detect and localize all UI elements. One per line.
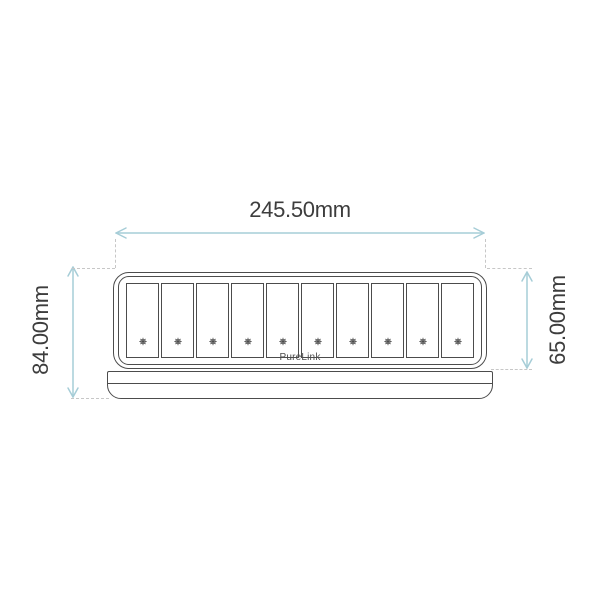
dimension-drawing: 245.50mm 84.00mm 65.00mm <box>0 0 600 600</box>
blank-slot-plate <box>301 283 334 358</box>
extension-line <box>115 239 116 268</box>
blank-slot-plate <box>336 283 369 358</box>
blank-slot-plate <box>406 283 439 358</box>
slot-row <box>126 283 474 358</box>
screw-head-icon <box>208 337 217 346</box>
width-dimension-label: 245.50mm <box>200 197 400 223</box>
blank-slot-plate <box>126 283 159 358</box>
screw-head-icon <box>453 337 462 346</box>
blank-slot-plate <box>196 283 229 358</box>
extension-line <box>487 268 532 269</box>
blank-slot-plate <box>161 283 194 358</box>
device-base <box>107 371 493 399</box>
extension-line <box>71 398 109 399</box>
body-height-dimension-label: 65.00mm <box>545 250 571 390</box>
extension-line <box>72 268 115 269</box>
screw-head-icon <box>383 337 392 346</box>
total-height-dimension-label: 84.00mm <box>28 260 54 400</box>
body-height-dimension-arrow <box>520 268 534 372</box>
extension-line <box>485 239 486 268</box>
extension-line <box>491 369 532 370</box>
screw-head-icon <box>138 337 147 346</box>
width-dimension-arrow <box>111 226 489 240</box>
screw-head-icon <box>418 337 427 346</box>
screw-head-icon <box>173 337 182 346</box>
blank-slot-plate <box>441 283 474 358</box>
screw-head-icon <box>313 337 322 346</box>
base-divider-line <box>108 383 492 384</box>
screw-head-icon <box>243 337 252 346</box>
brand-label: PureLink <box>113 352 487 363</box>
blank-slot-plate <box>371 283 404 358</box>
screw-head-icon <box>348 337 357 346</box>
blank-slot-plate <box>231 283 264 358</box>
total-height-dimension-arrow <box>66 263 80 401</box>
blank-slot-plate <box>266 283 299 358</box>
screw-head-icon <box>278 337 287 346</box>
